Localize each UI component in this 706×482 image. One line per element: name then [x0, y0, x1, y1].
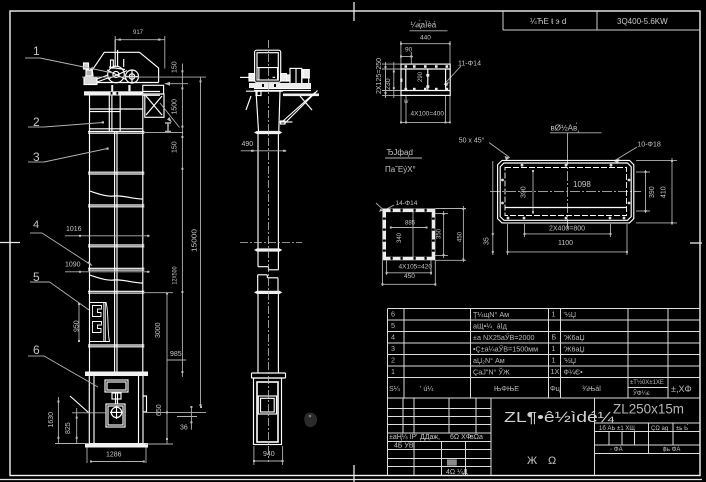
svg-text:3000: 3000 [155, 322, 162, 338]
svg-text:ЎΦ¼є: ЎΦ¼є [633, 389, 650, 397]
svg-text:1: 1 [552, 310, 556, 319]
svg-text:3: 3 [391, 344, 395, 353]
svg-text:1б АЬ ±1 ΧЩ: 1б АЬ ±1 ΧЩ [599, 426, 635, 432]
svg-text:2: 2 [391, 356, 395, 365]
svg-text:1: 1 [552, 344, 556, 353]
svg-text:'Ж6аЏ: 'Ж6аЏ [564, 333, 585, 342]
svg-text:12X500: 12X500 [171, 266, 178, 284]
svg-text:150: 150 [171, 61, 178, 73]
svg-text:4X100=400: 4X100=400 [411, 111, 445, 118]
svg-text:440: 440 [420, 35, 431, 42]
svg-text:450: 450 [458, 231, 464, 242]
svg-text:4: 4 [391, 333, 395, 342]
svg-text:230: 230 [385, 78, 392, 90]
svg-text:3Q400-5.6KW: 3Q400-5.6KW [617, 17, 668, 26]
svg-text:150: 150 [171, 141, 178, 153]
svg-text:390: 390 [649, 186, 656, 198]
svg-text:¼қ́аЇѐа́: ¼қ́аЇѐа́ [411, 21, 437, 30]
svg-text:вΩа: вΩа [470, 434, 483, 441]
svg-text:35: 35 [484, 237, 491, 245]
svg-text:2X125=250: 2X125=250 [376, 58, 383, 94]
svg-text:ZL250x15m: ZL250x15m [613, 401, 684, 417]
svg-text:1286: 1286 [106, 452, 122, 459]
svg-text:Ф¼Є•: Ф¼Є• [564, 368, 584, 377]
svg-text:¼ЋЕ ŧ э d: ¼ЋЕ ŧ э d [530, 17, 566, 26]
svg-text:985: 985 [170, 351, 182, 358]
svg-text:'Ж6аЏ: 'Ж6аЏ [564, 345, 585, 354]
svg-text:1500: 1500 [171, 99, 178, 115]
svg-text:350: 350 [437, 228, 443, 239]
svg-text:940: 940 [263, 451, 275, 458]
svg-text:90: 90 [405, 47, 413, 54]
svg-text:' ú¼: ' ú¼ [420, 384, 434, 393]
svg-text:вØ½Ав́¸: вØ½Ав́¸ [551, 124, 580, 133]
svg-text:ДДаж,: ДДаж, [420, 434, 440, 441]
svg-text:Б: Б [552, 333, 557, 342]
svg-text:1090: 1090 [65, 262, 81, 269]
svg-text:Φц: Φц [550, 384, 560, 393]
svg-text:410: 410 [661, 186, 668, 198]
svg-text:4Б ЎВ: 4Б ЎВ [394, 441, 414, 450]
svg-text:±,ΧΦ: ±,ΧΦ [671, 384, 692, 394]
svg-text:11-Φ14: 11-Φ14 [458, 61, 481, 68]
svg-text:650: 650 [156, 404, 163, 416]
svg-text:390: 390 [521, 186, 528, 198]
svg-text:885: 885 [405, 221, 416, 227]
svg-text:3: 3 [33, 150, 40, 164]
svg-text:2X400=800: 2X400=800 [549, 226, 585, 233]
svg-text:5: 5 [33, 270, 40, 284]
svg-text:50 x 45°: 50 x 45° [459, 137, 485, 145]
svg-text:6: 6 [33, 343, 40, 357]
svg-text:¾Њál: ¾Њál [582, 384, 601, 393]
svg-text:340: 340 [397, 232, 403, 243]
svg-text:4Ω ¼Д: 4Ω ¼Д [446, 469, 468, 476]
svg-text:1016: 1016 [66, 226, 82, 233]
svg-text:±а ΝΧ25аӲВ=2000: ±а ΝΧ25аӲВ=2000 [473, 333, 534, 342]
svg-text:36: 36 [180, 425, 188, 432]
svg-text:1098: 1098 [573, 180, 591, 189]
svg-text:ЂЈфа̧d: ЂЈфа̧d [387, 148, 413, 157]
svg-text:4: 4 [33, 219, 39, 231]
svg-text:Ω: Ω [548, 455, 556, 467]
svg-text:฿ь ΦА: ฿ь ΦА [663, 446, 680, 453]
svg-text:Ţ¼щΝ° Ам: Ţ¼щΝ° Ам [473, 310, 509, 319]
svg-text:6Ω ΧФ: 6Ω ΧФ [450, 434, 471, 441]
svg-text:аЏ₂Ν° Ам: аЏ₂Ν° Ам [473, 356, 505, 365]
svg-text:±ь Ь́: ±ь Ь́ [676, 425, 688, 432]
svg-text:14-Φ14: 14-Φ14 [396, 200, 418, 207]
svg-text:Па˘Еу́Χ°: Па˘Еу́Χ° [385, 165, 416, 174]
svg-text:450: 450 [404, 273, 415, 280]
svg-text:5: 5 [391, 321, 395, 330]
svg-text:2: 2 [33, 115, 40, 129]
svg-text:10-Φ18: 10-Φ18 [637, 142, 661, 149]
svg-text:◦ ΦА: ◦ ΦА [610, 447, 623, 453]
svg-text:1630: 1630 [48, 412, 55, 428]
svg-text:Ж: Ж [527, 455, 537, 467]
svg-text:ZL¶•ê½ìdé¼: ZL¶•ê½ìdé¼ [504, 409, 615, 426]
svg-text:4X105=420: 4X105=420 [399, 263, 433, 270]
svg-text:825: 825 [65, 422, 72, 434]
svg-text:1Χ: 1Χ [551, 367, 560, 376]
svg-text:1: 1 [33, 44, 40, 58]
svg-text:1100: 1100 [558, 240, 573, 247]
svg-text:ÇΩ аg: ÇΩ аg [651, 426, 668, 432]
svg-text:6: 6 [391, 310, 395, 319]
svg-text:917: 917 [133, 30, 144, 36]
svg-text:950: 950 [74, 320, 81, 332]
svg-text:•Ç±а¼аӲВ=1500мм: •Ç±а¼аӲВ=1500мм [473, 345, 538, 354]
svg-text:490: 490 [242, 141, 254, 148]
svg-text:аЩ•¼͵ а́اд: аЩ•¼͵ а́اд [473, 322, 508, 331]
svg-text:±аҢ¼ IР': ±аҢ¼ IР' [389, 434, 418, 441]
svg-text:15000: 15000 [192, 229, 199, 252]
svg-text:ÇаЈ"Ν° ЎЖ: ÇаЈ"Ν° ЎЖ [473, 368, 510, 377]
svg-text:1: 1 [552, 356, 556, 365]
svg-text:w: w [403, 99, 409, 105]
svg-text:'½Џ: '½Џ [564, 310, 577, 319]
svg-text:ЊΦЊЕ: ЊΦЊЕ [494, 384, 519, 393]
svg-text:1: 1 [391, 367, 395, 376]
svg-text:290: 290 [418, 71, 424, 82]
svg-text:±Т½0Χ±1ΧЕ: ±Т½0Χ±1ΧЕ [630, 379, 664, 386]
svg-text:'½Џ: '½Џ [564, 356, 577, 365]
svg-text:Ѕ¼: Ѕ¼ [389, 384, 401, 393]
